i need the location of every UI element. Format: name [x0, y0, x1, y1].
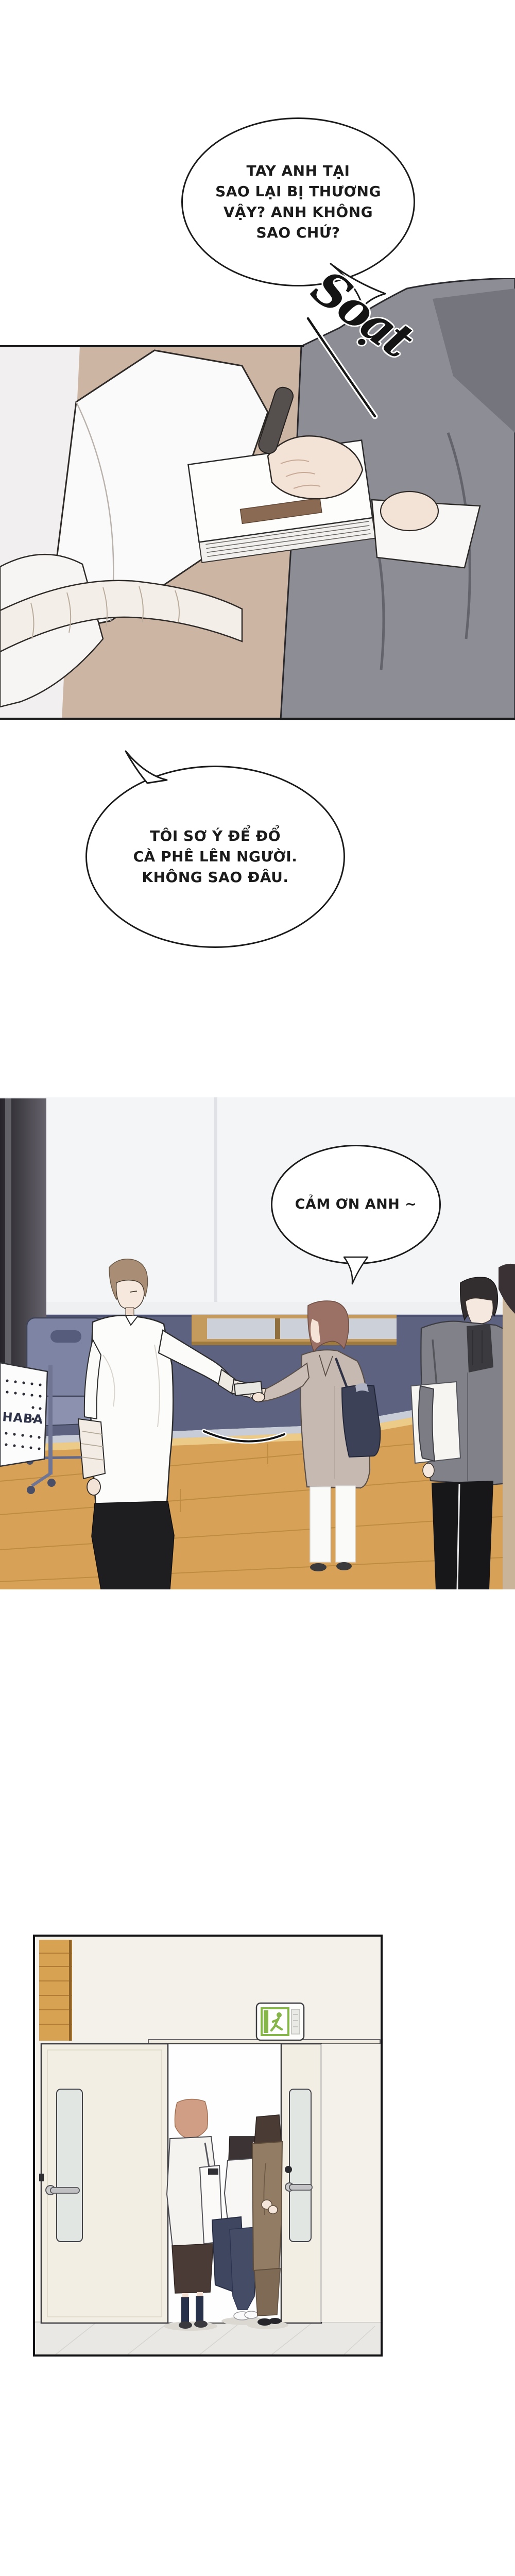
- speech-line: SAO CHỨ?: [256, 223, 340, 243]
- speech-bubble-2: TÔI SƠ Ý ĐỂ ĐỔ CÀ PHÊ LÊN NGƯỜI. KHÔNG S…: [85, 766, 345, 948]
- board-text: HABA: [2, 1410, 44, 1427]
- panel-3-frame: [33, 1935, 383, 2357]
- speech-bubble-3: CẢM ƠN ANH ~: [271, 1145, 441, 1264]
- panel-2-illustration: HABA: [0, 1097, 515, 1589]
- speech-line: KHÔNG SAO ĐÂU.: [142, 867, 288, 888]
- exit-sign-icon: [256, 2003, 304, 2040]
- speech-bubble-2-tail: [123, 748, 169, 784]
- comic-page: TAY ANH TẠI SAO LẠI BỊ THƯƠNG VẬY? ANH K…: [0, 0, 515, 2576]
- speech-line: CẢM ƠN ANH ~: [295, 1194, 417, 1215]
- door-handle-left: [50, 2188, 79, 2193]
- speech-line: TÔI SƠ Ý ĐỂ ĐỔ: [150, 826, 281, 846]
- speech-line: VẬY? ANH KHÔNG: [224, 202, 373, 223]
- speech-line: TAY ANH TẠI: [247, 161, 350, 181]
- panel-3-illustration: [35, 1937, 381, 2354]
- speech-line: SAO LẠI BỊ THƯƠNG: [215, 181, 381, 202]
- door-handle-right: [289, 2184, 312, 2190]
- speech-bubble-1: TAY ANH TẠI SAO LẠI BỊ THƯƠNG VẬY? ANH K…: [181, 117, 415, 286]
- panel-1-illustration: [0, 278, 515, 720]
- speech-bubble-3-tail: [338, 1256, 374, 1286]
- speech-line: CÀ PHÊ LÊN NGƯỜI.: [133, 846, 298, 867]
